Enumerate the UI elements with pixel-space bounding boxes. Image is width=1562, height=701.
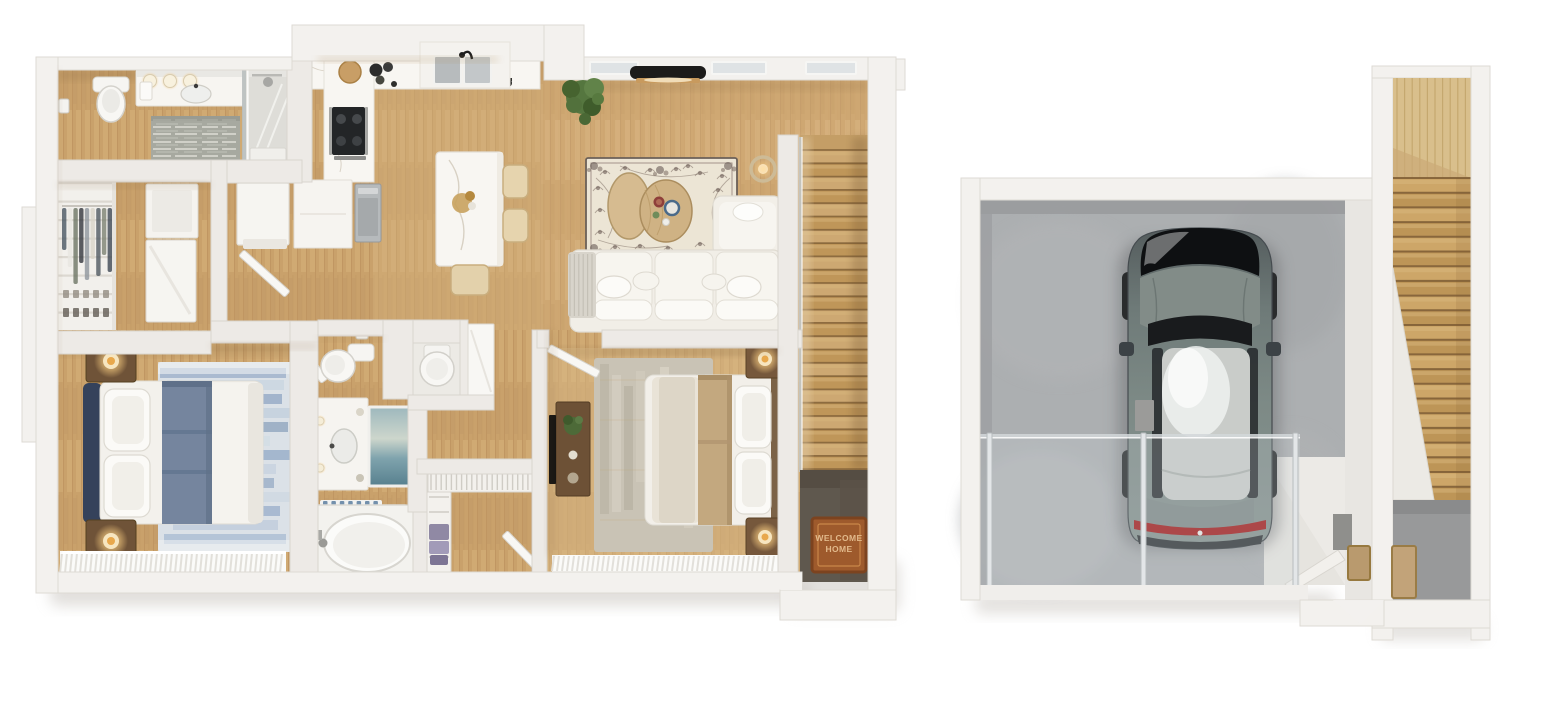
svg-text:HOME: HOME [825, 544, 852, 554]
svg-text:WELCOME: WELCOME [815, 533, 862, 543]
